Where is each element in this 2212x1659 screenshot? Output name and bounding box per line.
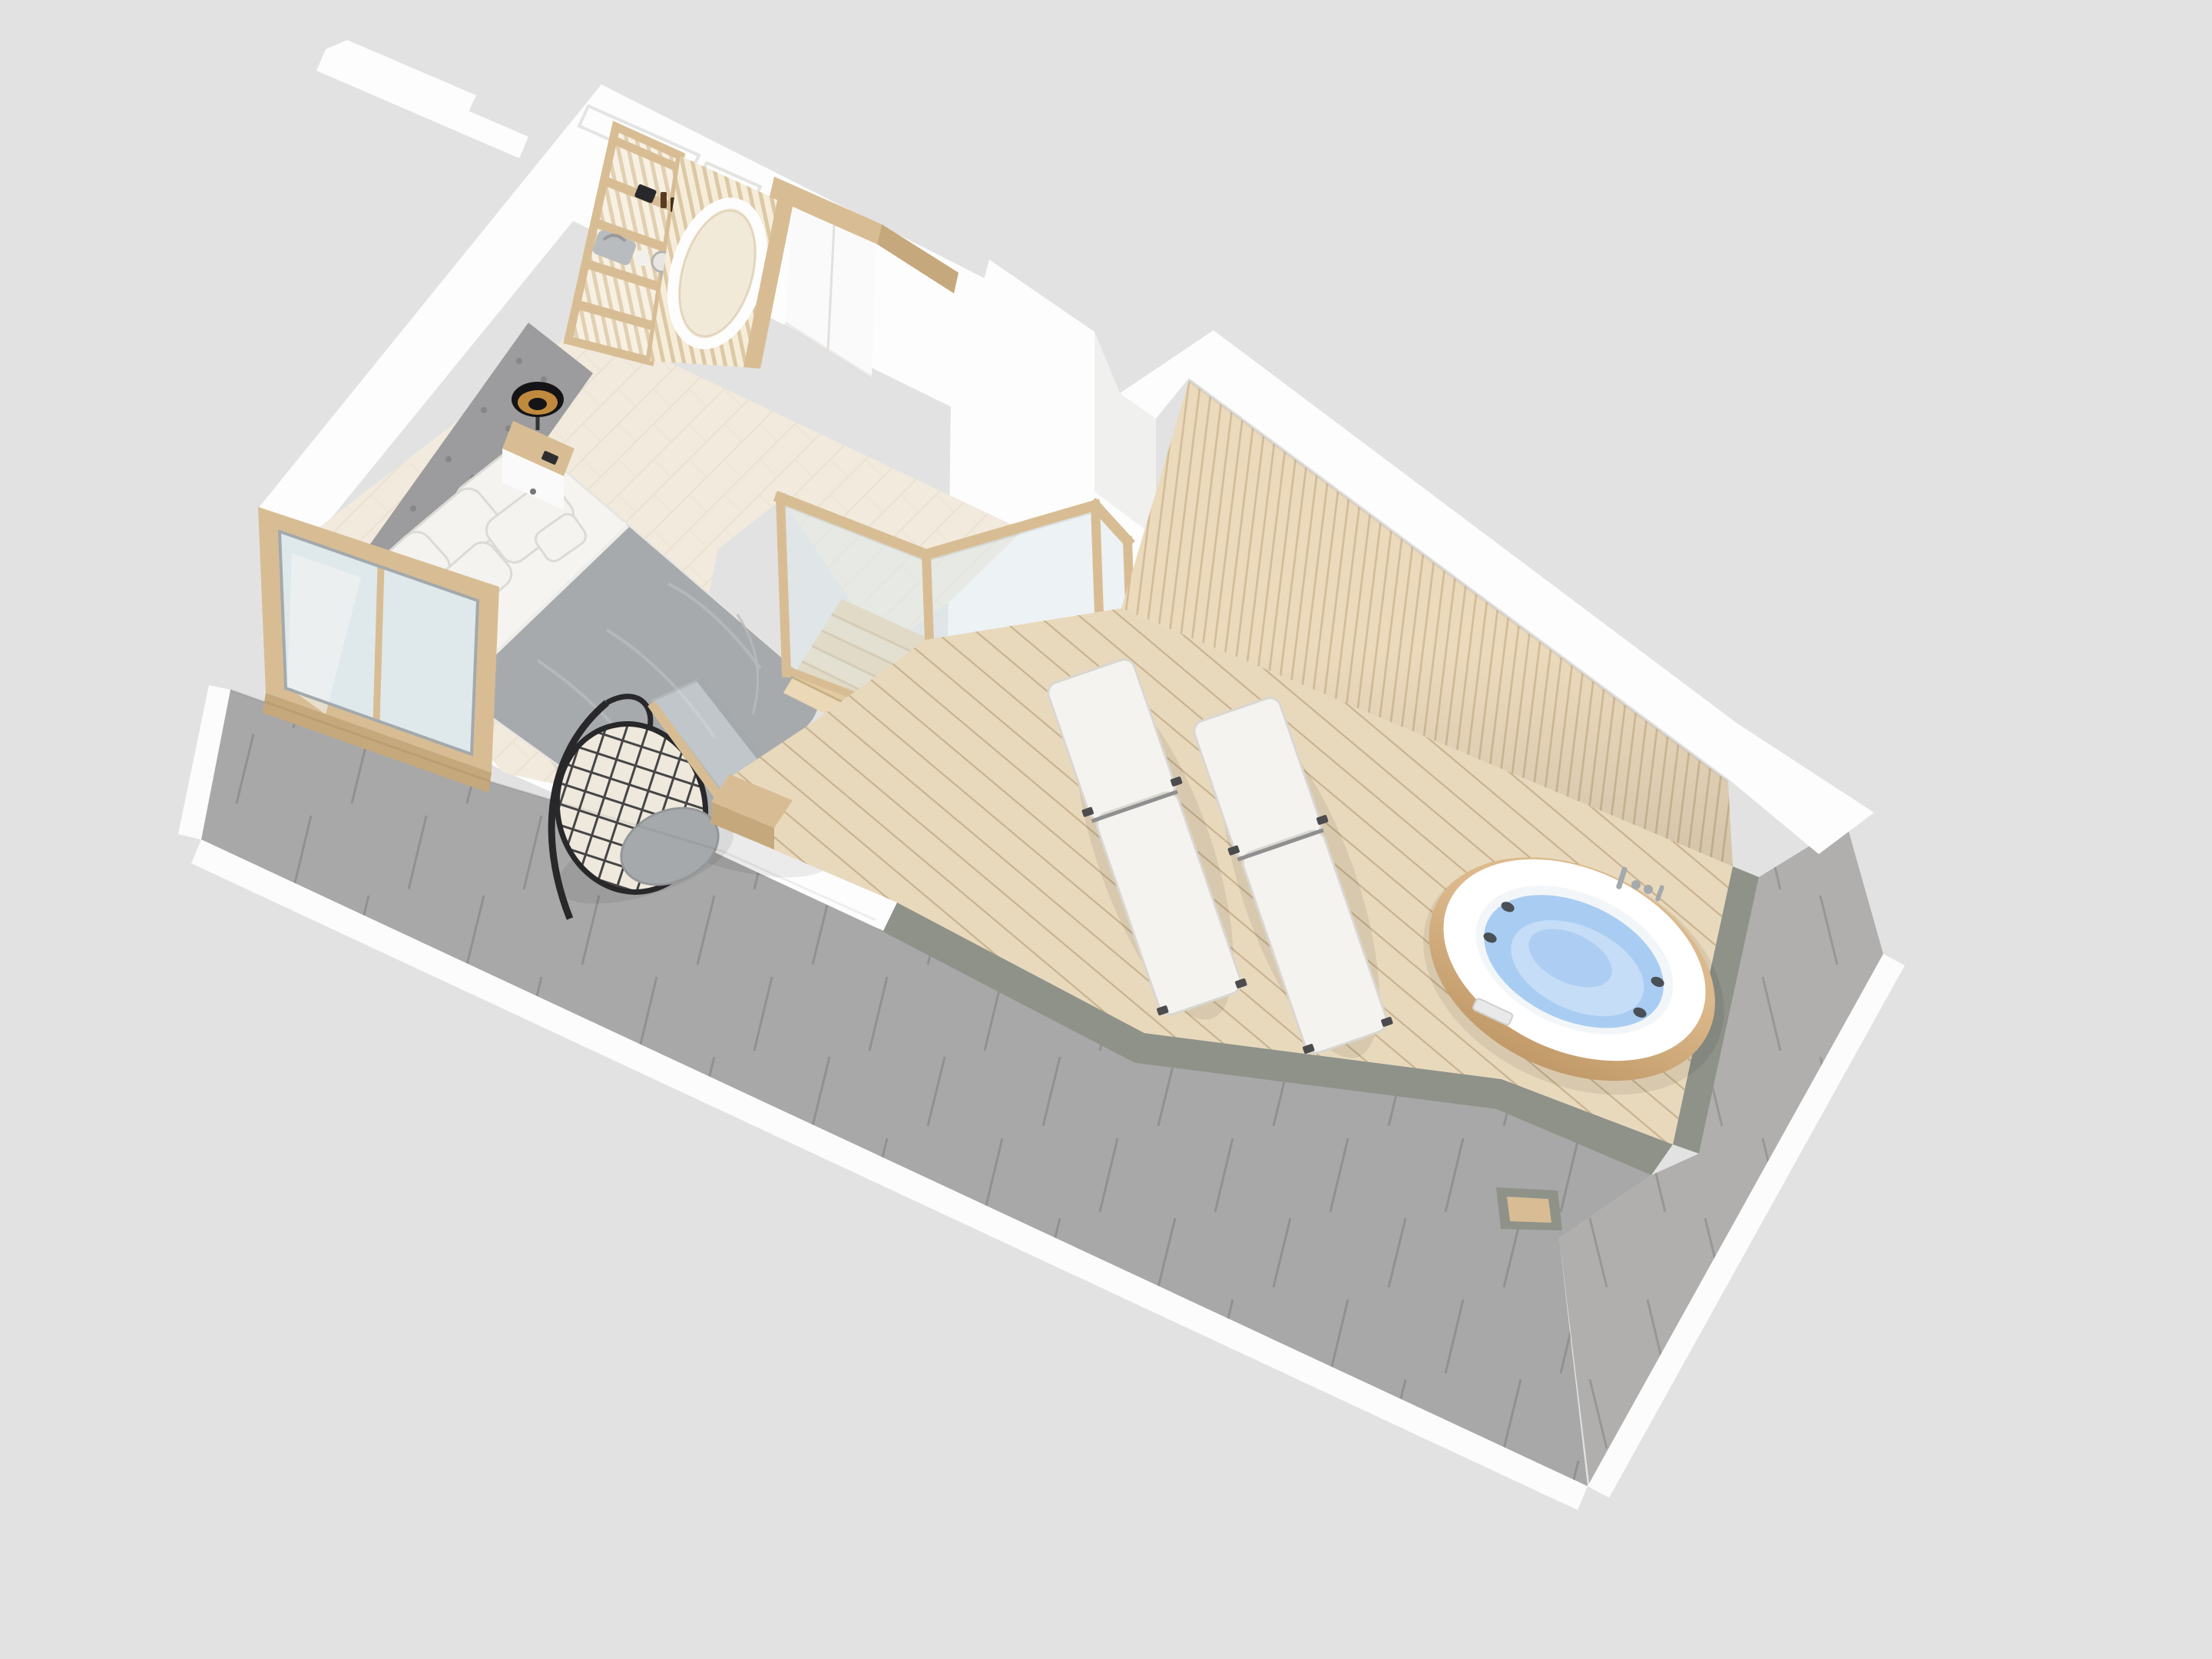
floorplan-canvas: tiled roof slope (front) tiled roof slop…	[0, 0, 2212, 1659]
floorplan-render: tiled roof slope (front) tiled roof slop…	[0, 0, 2212, 1659]
nightstand-knob	[530, 488, 536, 495]
decor-bottle: perfume bottles	[661, 192, 667, 208]
window-mullion	[376, 567, 381, 722]
lamp-bulb-core	[528, 398, 547, 410]
roof-notch: roof drainage recess	[1496, 1187, 1562, 1230]
notch-wood	[1507, 1197, 1551, 1223]
decor-jar: white jar	[637, 250, 647, 266]
